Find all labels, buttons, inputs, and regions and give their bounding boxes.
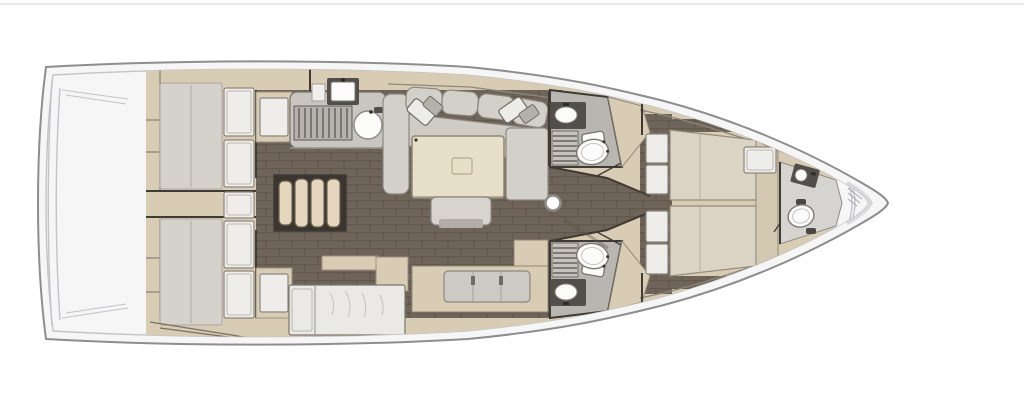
midship-locker-column	[224, 192, 254, 218]
boat-floor-plan	[0, 0, 1024, 408]
table-icon	[412, 136, 504, 198]
vanity	[744, 147, 776, 173]
stool-bench	[431, 197, 491, 228]
l-settee-cushions	[444, 271, 530, 302]
companionway	[274, 175, 346, 231]
lounge-seat	[289, 285, 405, 335]
mast-post-icon	[546, 196, 561, 211]
aft-cabin-port	[146, 70, 256, 191]
shower-grate-icon	[552, 243, 578, 277]
shower-grate-icon	[552, 131, 578, 165]
cutting-board	[312, 84, 325, 101]
sink-icon	[550, 102, 586, 129]
stove-grate-icon	[294, 106, 352, 140]
boat-floor-plan-page	[0, 0, 1024, 408]
interior	[146, 58, 889, 350]
sink-icon	[550, 279, 586, 306]
sink-icon	[327, 78, 359, 105]
